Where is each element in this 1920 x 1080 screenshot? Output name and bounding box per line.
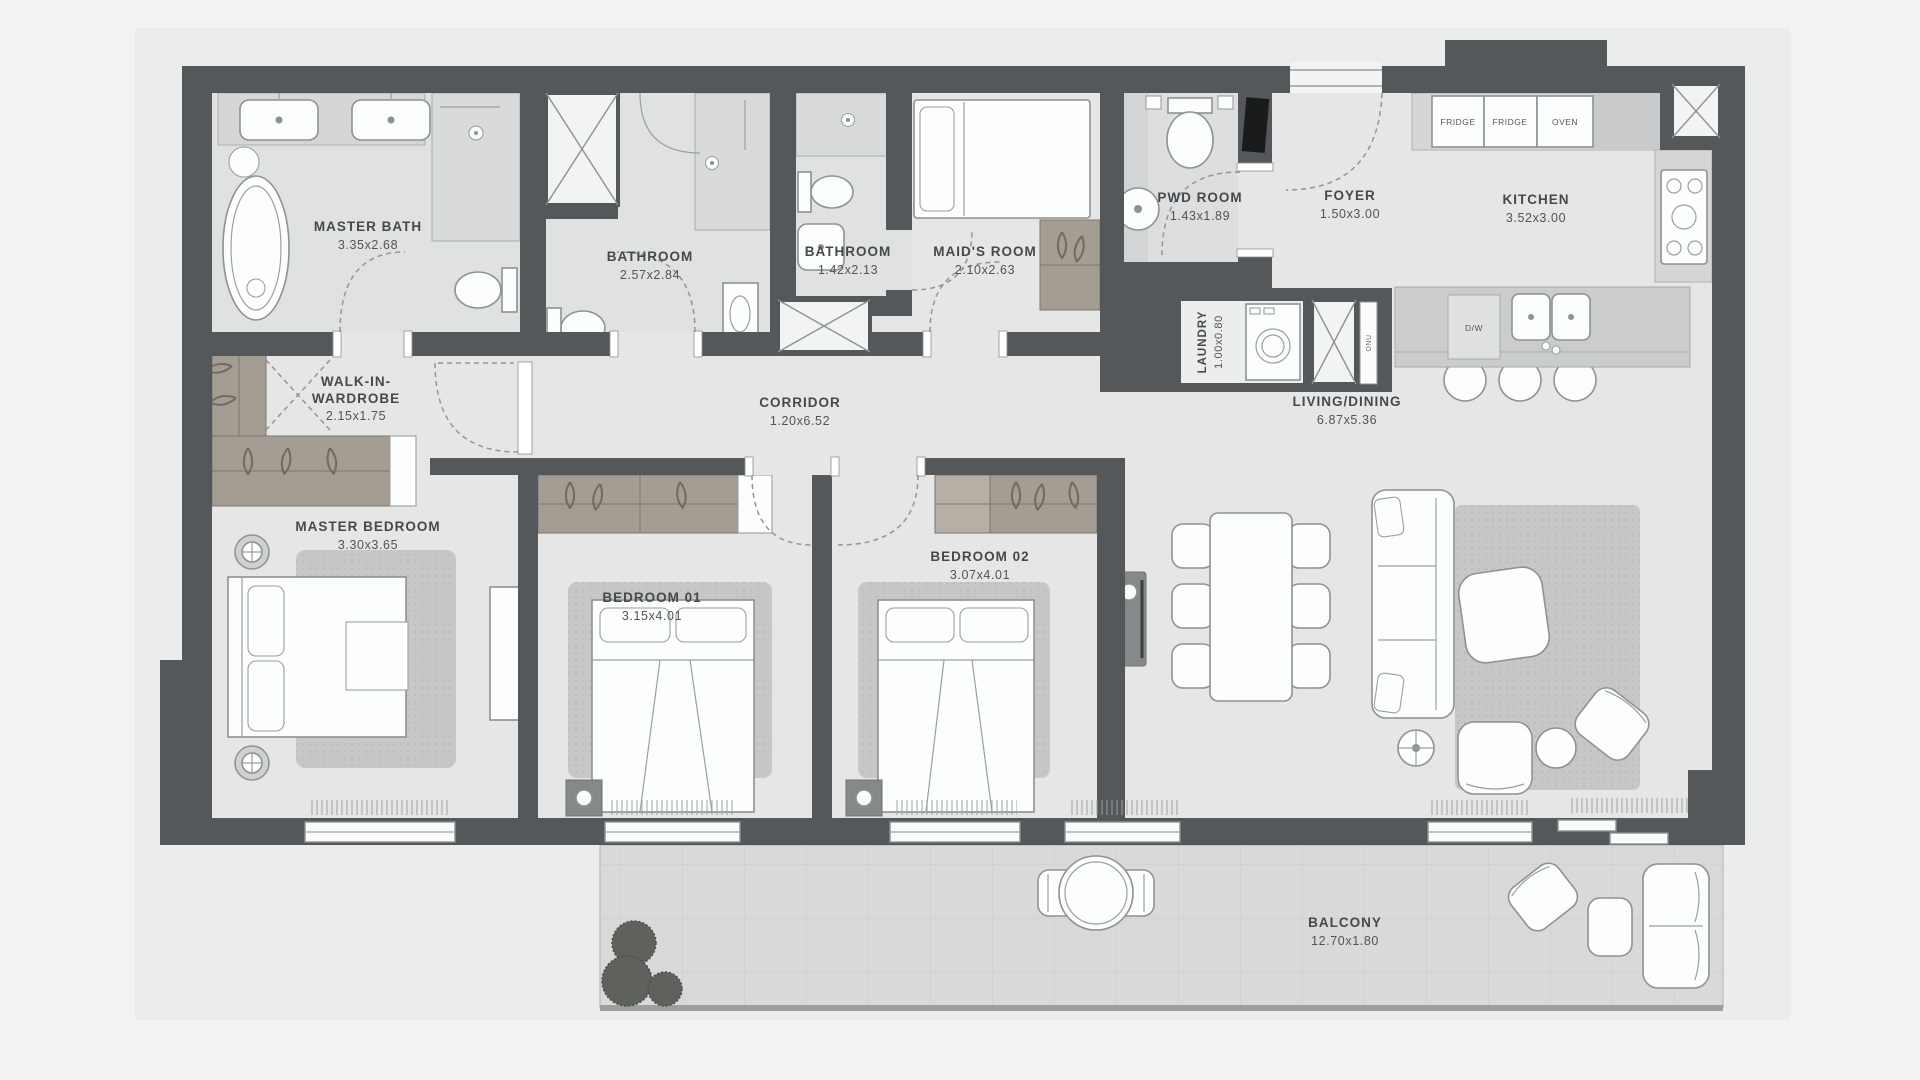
shaft-icon	[1312, 300, 1356, 384]
room-dims-pwd: 1.43x1.89	[1170, 209, 1230, 223]
room-label-bathroom-1: BATHROOM	[607, 249, 694, 264]
room-dims-kitchen: 3.52x3.00	[1506, 211, 1566, 225]
bedroom-02-wardrobe	[935, 475, 1097, 533]
bedroom-01-wardrobe	[538, 475, 772, 533]
oven-label: OVEN	[1552, 117, 1578, 127]
balcony	[600, 845, 1723, 1011]
floor-lamp-icon	[1398, 730, 1434, 766]
washing-machine-icon	[1246, 304, 1300, 380]
window	[305, 822, 455, 842]
lamp-icon	[856, 790, 872, 806]
balcony-parapet	[600, 1005, 1723, 1011]
room-label-corridor: CORRIDOR	[759, 395, 841, 410]
bed-icon	[592, 600, 754, 812]
fridge-label: FRIDGE	[1440, 117, 1475, 127]
stool-icon	[229, 147, 259, 177]
room-dims-master-bedroom: 3.30x3.65	[338, 538, 398, 552]
balcony-side-table-icon	[1588, 898, 1632, 956]
window	[1428, 822, 1532, 842]
armchair-icon	[1458, 722, 1532, 794]
shaft-icon	[546, 93, 618, 205]
room-label-maids-room: MAID'S ROOM	[933, 244, 1036, 259]
room-label-foyer: FOYER	[1324, 188, 1376, 203]
room-label-wardrobe-2: WARDROBE	[312, 391, 400, 406]
room-label-bedroom-02: BEDROOM 02	[930, 549, 1029, 564]
window	[605, 822, 740, 842]
room-label-wardrobe-1: WALK-IN-	[321, 374, 391, 389]
onu-label-group: ONU	[1366, 334, 1373, 351]
room-dims-balcony: 12.70x1.80	[1311, 934, 1379, 948]
bedroom-02	[846, 582, 1050, 816]
onu-label: ONU	[1366, 334, 1373, 351]
dresser-icon	[490, 587, 520, 720]
wardrobe-icon	[1040, 220, 1100, 310]
lamp-icon	[235, 535, 269, 569]
coffee-table-icon	[1456, 565, 1552, 666]
bathtub-icon	[223, 176, 289, 320]
bed-icon	[228, 577, 408, 737]
room-dims-corridor: 1.20x6.52	[770, 414, 830, 428]
room-dims-master-bath: 3.35x2.68	[338, 238, 398, 252]
room-label-laundry: LAUNDRY	[1197, 311, 1209, 374]
room-label-kitchen: KITCHEN	[1503, 192, 1570, 207]
stove-icon	[1661, 170, 1707, 264]
sofa-icon	[1372, 490, 1454, 718]
side-table-icon	[1536, 728, 1576, 768]
room-label-bedroom-01: BEDROOM 01	[602, 590, 701, 605]
room-dims-bathroom-1: 2.57x2.84	[620, 268, 680, 282]
room-label-bathroom-2: BATHROOM	[805, 244, 892, 259]
room-label-living: LIVING/DINING	[1292, 394, 1401, 409]
room-dims-bathroom-2: 1.42x2.13	[818, 263, 878, 277]
room-dims-laundry: 1.00x0.80	[1213, 315, 1225, 369]
room-dims-wardrobe: 2.15x1.75	[326, 409, 386, 423]
window	[1065, 822, 1180, 842]
lamp-icon	[235, 746, 269, 780]
lamp-icon	[576, 790, 592, 806]
dining-set-icon	[1172, 513, 1330, 701]
room-dims-bedroom-01: 3.15x4.01	[622, 609, 682, 623]
room-dims-bedroom-02: 3.07x4.01	[950, 568, 1010, 582]
dishwasher-label: D/W	[1465, 323, 1483, 333]
balcony-sofa-icon	[1643, 864, 1709, 988]
room-label-master-bedroom: MASTER BEDROOM	[295, 519, 440, 534]
fridge-label: FRIDGE	[1492, 117, 1527, 127]
room-dims-foyer: 1.50x3.00	[1320, 207, 1380, 221]
room-label-master-bath: MASTER BATH	[314, 219, 422, 234]
room-dims-maids-room: 2.10x2.63	[955, 263, 1015, 277]
kitchen-island	[1395, 287, 1690, 367]
toilet-icon	[455, 268, 517, 312]
floor-plan: MASTER BATH 3.35x2.68 BATHROOM 2.57x2.84…	[0, 0, 1920, 1080]
shaft-icon	[778, 300, 870, 352]
window	[890, 822, 1020, 842]
bed-icon	[878, 600, 1034, 812]
bed-icon	[914, 100, 1090, 218]
entry-closet	[1242, 97, 1270, 153]
room-label-pwd: PWD ROOM	[1157, 190, 1242, 205]
room-dims-living: 6.87x5.36	[1317, 413, 1377, 427]
kitchen-counter-corner	[1593, 93, 1668, 150]
shower-icon	[432, 93, 520, 241]
shaft-icon	[1672, 84, 1720, 138]
room-label-balcony: BALCONY	[1308, 915, 1382, 930]
